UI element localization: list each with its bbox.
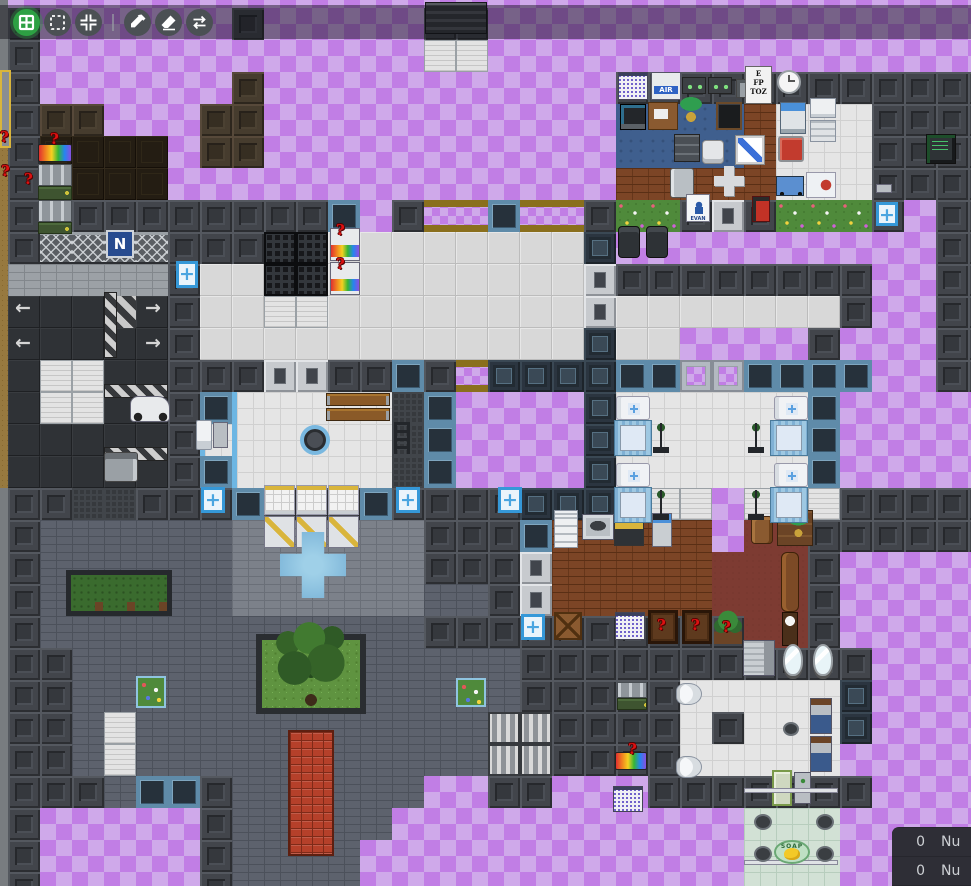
map-tile-wall	[72, 776, 104, 808]
map-tile-wall	[200, 232, 232, 264]
map-tile-wall	[552, 712, 584, 744]
map-tile-wall	[424, 552, 456, 584]
map-tile-circuit-wall	[584, 424, 616, 456]
map-tile-corridor-floor	[552, 328, 584, 360]
map-tile-wall	[232, 232, 264, 264]
map-tile-wall	[648, 776, 680, 808]
map-tile-asphalt	[40, 296, 72, 328]
map-tile-sidewalk	[8, 264, 40, 296]
map-tile-wall	[8, 200, 40, 232]
map-tile-airlock-door	[296, 360, 328, 392]
map-tile-corridor-floor	[488, 264, 520, 296]
question-marker: ?	[628, 740, 637, 758]
map-tile-corridor-floor	[648, 328, 680, 360]
map-tile-wall	[488, 520, 520, 552]
map-tile-wall	[8, 584, 40, 616]
map-tile-yellow-frame-window	[424, 200, 456, 232]
map-tile-cobblestone	[232, 840, 264, 872]
floor-cross	[714, 166, 744, 196]
map-tile-wall	[584, 616, 616, 648]
map-tile-wall	[8, 40, 40, 72]
map-tile-wall	[104, 200, 136, 232]
question-marker: ?	[691, 616, 700, 634]
map-tile-wall	[648, 712, 680, 744]
map-tile-corridor-floor	[520, 264, 552, 296]
atv-vehicle	[130, 396, 170, 422]
map-tile-wall	[168, 392, 200, 424]
curtained-bed	[770, 420, 808, 456]
map-tile-corridor-floor	[488, 328, 520, 360]
map-tile-dark-brown-floor	[72, 168, 104, 200]
map-tile-wall	[584, 648, 616, 680]
map-tile-cobblestone	[360, 744, 392, 776]
map-tile-wall	[488, 776, 520, 808]
drawer-unit	[810, 120, 836, 142]
medical-cross-sign: +	[876, 202, 898, 226]
map-tile-paved-plaza	[232, 520, 264, 552]
map-tile-wall	[136, 200, 168, 232]
railing	[744, 788, 838, 793]
map-tile-wall	[8, 104, 40, 136]
map-tile-wall	[168, 232, 200, 264]
map-tile-wall	[168, 488, 200, 520]
map-tile-paved-plaza	[360, 552, 392, 584]
map-tile-wall	[8, 616, 40, 648]
map-tile-wall	[936, 488, 968, 520]
map-tile-wall	[584, 744, 616, 776]
map-tile-wall	[840, 296, 872, 328]
map-tile-cobblestone	[168, 744, 200, 776]
tree	[270, 608, 352, 708]
medical-cross-sign: +	[176, 261, 198, 288]
map-tile-white-panel	[456, 40, 488, 72]
map-tile-blue-frame-window	[808, 392, 840, 424]
map-tile-asphalt	[8, 392, 40, 424]
grid-tool-button[interactable]	[13, 9, 40, 36]
map-tile-wall	[904, 104, 936, 136]
map-tile-cobblestone	[104, 680, 136, 712]
map-tile-wall	[840, 72, 872, 104]
marquee-select-tool-button[interactable]	[44, 9, 71, 36]
map-tile-cobblestone	[424, 712, 456, 744]
map-tile-white-tile-blue-edge	[232, 392, 264, 424]
map-tile-wall	[648, 648, 680, 680]
wooden-desk	[648, 102, 678, 130]
map-tile-white-tile-floor	[744, 712, 776, 744]
map-tile-wall	[200, 808, 232, 840]
question-marker: ?	[0, 128, 9, 146]
locker-row	[617, 682, 647, 698]
poster-sign: EVAN	[686, 194, 710, 222]
map-tile-cobblestone	[488, 648, 520, 680]
map-tile-cobblestone	[200, 680, 232, 712]
map-tile-cobblestone	[424, 648, 456, 680]
map-tile-corridor-floor	[616, 296, 648, 328]
map-tile-white-panel	[264, 296, 296, 328]
flower-bed	[136, 676, 166, 708]
blue-cart	[776, 176, 804, 196]
map-tile-wall	[8, 808, 40, 840]
map-tile-cobblestone	[72, 648, 104, 680]
map-tile-wall	[808, 552, 840, 584]
map-tile-brown-wall	[200, 104, 232, 136]
map-tile-wall	[904, 520, 936, 552]
wall-clock	[777, 70, 801, 94]
map-tile-wall	[40, 776, 72, 808]
map-tile-white-panel	[104, 744, 136, 776]
map-tile-cobblestone	[392, 648, 424, 680]
map-tile-corridor-floor	[392, 232, 424, 264]
map-tile-wall	[520, 680, 552, 712]
map-tile-circuit-wall	[584, 328, 616, 360]
map-tile-wall	[840, 520, 872, 552]
map-tile-cobblestone	[136, 712, 168, 744]
map-tile-wall	[520, 648, 552, 680]
nanotrasen-sign: N	[106, 230, 134, 258]
map-tile-wall	[8, 872, 40, 886]
map-tile-wood-floor	[616, 552, 648, 584]
map-tile-corridor-floor	[616, 328, 648, 360]
floor-arrow-right: →	[140, 332, 166, 354]
map-tile-corridor-floor	[520, 232, 552, 264]
map-tile-wood-floor	[680, 520, 712, 552]
dotted-vendor	[613, 786, 643, 812]
map-tile-white-tile-floor	[744, 680, 776, 712]
map-tile-cobblestone	[392, 680, 424, 712]
map-tile-circuit-wall	[840, 680, 872, 712]
map-tile-cobblestone	[168, 680, 200, 712]
status-row: 0 Nu	[892, 828, 971, 856]
map-tile-wall	[40, 680, 72, 712]
map-tile-flower-grass	[840, 200, 872, 232]
map-tile-corridor-floor	[296, 328, 328, 360]
map-tile-white-tile-floor	[840, 104, 872, 136]
map-tile-corridor-floor	[232, 328, 264, 360]
map-tile-cobblestone	[72, 744, 104, 776]
map-tile-cobblestone	[72, 712, 104, 744]
rainbow-machine	[330, 262, 360, 295]
shower-stall	[328, 485, 359, 515]
map-tile-cobblestone	[72, 520, 104, 552]
map-tile-wall	[488, 584, 520, 616]
map-tile-corridor-floor	[392, 328, 424, 360]
status-row: 0 Nu	[892, 857, 971, 885]
ladder	[392, 422, 412, 454]
map-tile-cobblestone	[104, 648, 136, 680]
map-tile-corridor-floor	[232, 264, 264, 296]
map-tile-corridor-floor	[552, 264, 584, 296]
map-tile-cobblestone	[200, 584, 232, 616]
map-tile-asphalt	[72, 456, 104, 488]
map-tile-corridor-floor	[360, 328, 392, 360]
map-tile-white-tile-floor	[296, 456, 328, 488]
marquee-select-icon	[47, 12, 68, 33]
map-tile-glass-door	[680, 360, 712, 392]
small-tool	[876, 184, 892, 193]
map-tile-blue-frame-window	[232, 488, 264, 520]
map-tile-wall	[8, 776, 40, 808]
map-tile-white-tile-floor	[840, 136, 872, 168]
map-tile-wall	[776, 264, 808, 296]
map-tile-blue-frame-window	[776, 360, 808, 392]
map-tile-wall	[168, 328, 200, 360]
computer-terminal	[620, 104, 646, 130]
map-tile-wood-floor	[584, 552, 616, 584]
medical-cross-sign: +	[396, 487, 420, 513]
map-tile-cobblestone	[168, 712, 200, 744]
floor-arrow-right: →	[140, 297, 166, 319]
hospital-bed	[616, 396, 650, 420]
map-tile-white-tile-floor	[712, 744, 744, 776]
map-tile-white-panel	[72, 360, 104, 392]
map-tile-brown-wall	[200, 136, 232, 168]
map-tile-cobblestone	[360, 808, 392, 840]
map-tile-wall	[328, 360, 360, 392]
map-tile-white-tile-floor	[648, 456, 680, 488]
map-tile-dark-grille	[104, 488, 136, 520]
map-tile-wall	[616, 264, 648, 296]
map-tile-wall	[40, 712, 72, 744]
hospital-bed	[616, 463, 650, 487]
iv-stand	[748, 490, 764, 520]
eyedropper-tool-button[interactable]	[124, 9, 151, 36]
map-tile-paved-plaza	[360, 584, 392, 616]
map-tile-corridor-floor	[456, 328, 488, 360]
map-tile-paved-plaza	[232, 552, 264, 584]
air-vendor: AIR	[651, 72, 681, 100]
map-tile-cobblestone	[168, 552, 200, 584]
wall-monitor	[708, 77, 732, 94]
map-tile-wall	[456, 616, 488, 648]
map-tile-wall	[232, 200, 264, 232]
map-tile-white-panel	[680, 488, 712, 520]
map-tile-corridor-floor	[808, 296, 840, 328]
compress-arrows-icon	[78, 12, 99, 33]
wooden-bench	[326, 408, 390, 421]
map-tile-white-tile-floor	[680, 712, 712, 744]
map-tile-white-tile-floor	[360, 456, 392, 488]
map-tile-corridor-floor	[424, 232, 456, 264]
map-tile-wall	[8, 488, 40, 520]
map-tile-wall	[200, 360, 232, 392]
dotted-vendor	[615, 612, 645, 640]
map-tile-wall	[680, 776, 712, 808]
map-tile-wall	[936, 104, 968, 136]
map-tile-cobblestone	[200, 616, 232, 648]
map-tile-blue-frame-window	[616, 360, 648, 392]
map-tile-wall	[168, 200, 200, 232]
map-tile-corridor-floor	[488, 232, 520, 264]
map-tile-dark-grille	[392, 392, 424, 424]
map-tile-wall	[72, 200, 104, 232]
map-tile-stairs	[520, 744, 552, 776]
grid-icon	[16, 12, 37, 33]
scanner-machine	[780, 102, 806, 134]
map-tile-asphalt	[40, 456, 72, 488]
map-tile-wall	[840, 776, 872, 808]
map-tile-wall	[8, 520, 40, 552]
map-tile-dark-brown-floor	[104, 168, 136, 200]
map-tile-wall	[8, 136, 40, 168]
washer-unit	[196, 420, 212, 450]
map-tile-cobblestone	[392, 744, 424, 776]
map-tile-wood-floor	[648, 552, 680, 584]
brick-path	[288, 730, 334, 856]
question-marker: ?	[1, 162, 10, 180]
map-tile-white-panel	[424, 40, 456, 72]
question-marker: ?	[722, 618, 731, 636]
mirror	[813, 644, 833, 676]
map-tile-chain-fence	[40, 232, 72, 264]
map-tile-corridor-floor	[520, 296, 552, 328]
map-tile-wall	[8, 232, 40, 264]
map-tile-wall	[8, 840, 40, 872]
wooden-bench	[326, 393, 390, 406]
map-tile-white-panel	[40, 360, 72, 392]
map-tile-airlock-door	[712, 200, 744, 232]
map-tile-circuit-wall	[520, 360, 552, 392]
map-tile-corridor-floor	[552, 296, 584, 328]
map-tile-cobblestone	[200, 520, 232, 552]
map-tile-wall	[424, 360, 456, 392]
map-tile-dark-grille	[72, 488, 104, 520]
map-tile-flower-grass	[808, 200, 840, 232]
map-tile-server-rack	[296, 264, 328, 296]
map-tile-white-tile-floor	[296, 392, 328, 424]
curtained-bed	[614, 487, 652, 523]
map-tile-corridor-floor	[200, 328, 232, 360]
map-tile-wall	[936, 296, 968, 328]
map-tile-stairs	[488, 712, 520, 744]
compress-tool-button[interactable]	[75, 9, 102, 36]
map-tile-wall	[392, 200, 424, 232]
map-tile-wall	[712, 712, 744, 744]
map-tile-cobblestone	[200, 712, 232, 744]
map-tile-cobblestone	[72, 616, 104, 648]
map-tile-glass-door	[712, 360, 744, 392]
question-marker: ?	[50, 130, 59, 148]
map-tile-cobblestone	[104, 616, 136, 648]
map-tile-corridor-floor	[392, 296, 424, 328]
hazard-stripe	[104, 292, 117, 358]
map-tile-yellow-frame-window	[520, 200, 552, 232]
yellow-closet	[328, 516, 359, 548]
map-tile-wall	[584, 200, 616, 232]
map-tile-white-tile-floor	[744, 456, 776, 488]
map-tile-yellow-frame-window	[456, 200, 488, 232]
map-tile-wall	[712, 776, 744, 808]
map-tile-server-rack	[264, 232, 296, 264]
map-tile-wall	[40, 648, 72, 680]
tv-screen	[716, 102, 742, 130]
map-tile-wall	[552, 648, 584, 680]
map-tile-cobblestone	[168, 616, 200, 648]
floor-arrow-left: ←	[10, 332, 36, 354]
map-tile-wall	[456, 520, 488, 552]
map-tile-white-tile-floor	[680, 456, 712, 488]
map-tile-circuit-wall	[520, 488, 552, 520]
map-tile-paved-plaza	[232, 584, 264, 616]
map-tile-white-panel	[296, 296, 328, 328]
wall-monitor	[682, 77, 706, 94]
map-tile-dark-brown-floor	[136, 136, 168, 168]
map-tile-airlock-door	[520, 584, 552, 616]
map-tile-wall	[488, 616, 520, 648]
map-tile-cobblestone	[456, 648, 488, 680]
map-tile-wall	[200, 776, 232, 808]
map-tile-white-tile-floor	[680, 392, 712, 424]
map-tile-brown-wall	[232, 104, 264, 136]
map-tile-cobblestone	[360, 712, 392, 744]
map-tile-white-tile-floor	[328, 424, 360, 456]
banker-lamp	[678, 97, 704, 122]
map-tile-wall	[200, 840, 232, 872]
map-tile-cobblestone	[264, 872, 296, 886]
map-tile-wall	[8, 744, 40, 776]
shower-stall	[264, 485, 295, 515]
map-tile-cobblestone	[424, 584, 456, 616]
editor-toolbar	[0, 5, 971, 39]
map-tile-cobblestone	[200, 744, 232, 776]
medical-cross-sign: +	[201, 487, 225, 513]
question-marker: ?	[336, 255, 345, 273]
ammo-crates	[38, 186, 72, 200]
kitchen-sink	[582, 514, 614, 540]
wall-art	[736, 136, 764, 164]
map-tile-corridor-floor	[424, 264, 456, 296]
map-tile-wall	[872, 72, 904, 104]
curtained-bed	[614, 420, 652, 456]
map-tile-cobblestone	[40, 520, 72, 552]
locker-row	[38, 200, 72, 222]
map-tile-wall	[936, 520, 968, 552]
map-tile-blue-frame-window	[840, 360, 872, 392]
map-tile-wall	[40, 488, 72, 520]
map-tile-cobblestone	[40, 616, 72, 648]
map-tile-wall	[584, 712, 616, 744]
map-tile-blue-frame-window	[808, 424, 840, 456]
map-tile-wood-floor	[680, 552, 712, 584]
map-tile-airlock-door	[264, 360, 296, 392]
map-tile-corridor-floor	[264, 328, 296, 360]
map-tile-cobblestone	[104, 520, 136, 552]
map-tile-white-tile-floor	[712, 424, 744, 456]
map-tile-cobblestone	[456, 712, 488, 744]
map-tile-wood-floor	[616, 168, 648, 200]
map-tile-wall	[168, 296, 200, 328]
map-tile-blue-frame-window	[520, 520, 552, 552]
swap-tool-button[interactable]	[186, 9, 213, 36]
map-tile-circuit-wall	[584, 360, 616, 392]
map-tile-wall	[680, 264, 712, 296]
map-tile-wall	[872, 104, 904, 136]
scooter	[104, 452, 138, 482]
dark-chair	[618, 226, 640, 258]
yellow-closet	[264, 516, 295, 548]
map-tile-corridor-floor	[456, 296, 488, 328]
map-tile-wall	[936, 328, 968, 360]
map-tile-shower-tile	[776, 808, 808, 840]
toilet	[676, 683, 702, 705]
map-tile-wall	[232, 360, 264, 392]
map-tile-wall	[456, 552, 488, 584]
eyedropper-icon	[127, 12, 148, 33]
map-tile-white-tile-floor	[776, 680, 808, 712]
map-tile-cobblestone	[136, 520, 168, 552]
eraser-tool-button[interactable]	[155, 9, 182, 36]
map-tile-corridor-floor	[712, 296, 744, 328]
green-screen-machine	[926, 134, 956, 164]
